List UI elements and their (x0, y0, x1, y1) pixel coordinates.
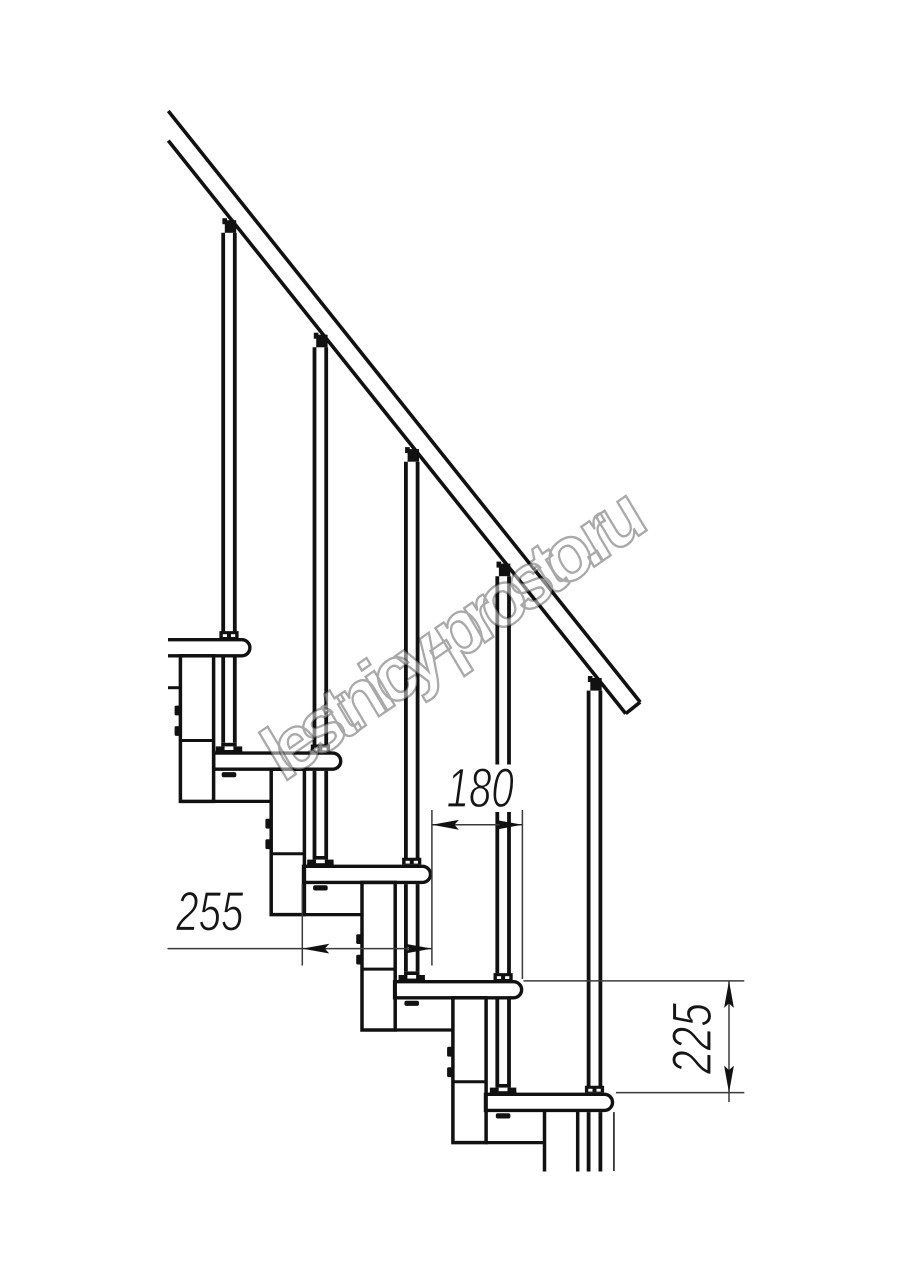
svg-text:255: 255 (175, 881, 244, 943)
svg-text:225: 225 (660, 1003, 723, 1075)
svg-text:180: 180 (447, 758, 514, 820)
